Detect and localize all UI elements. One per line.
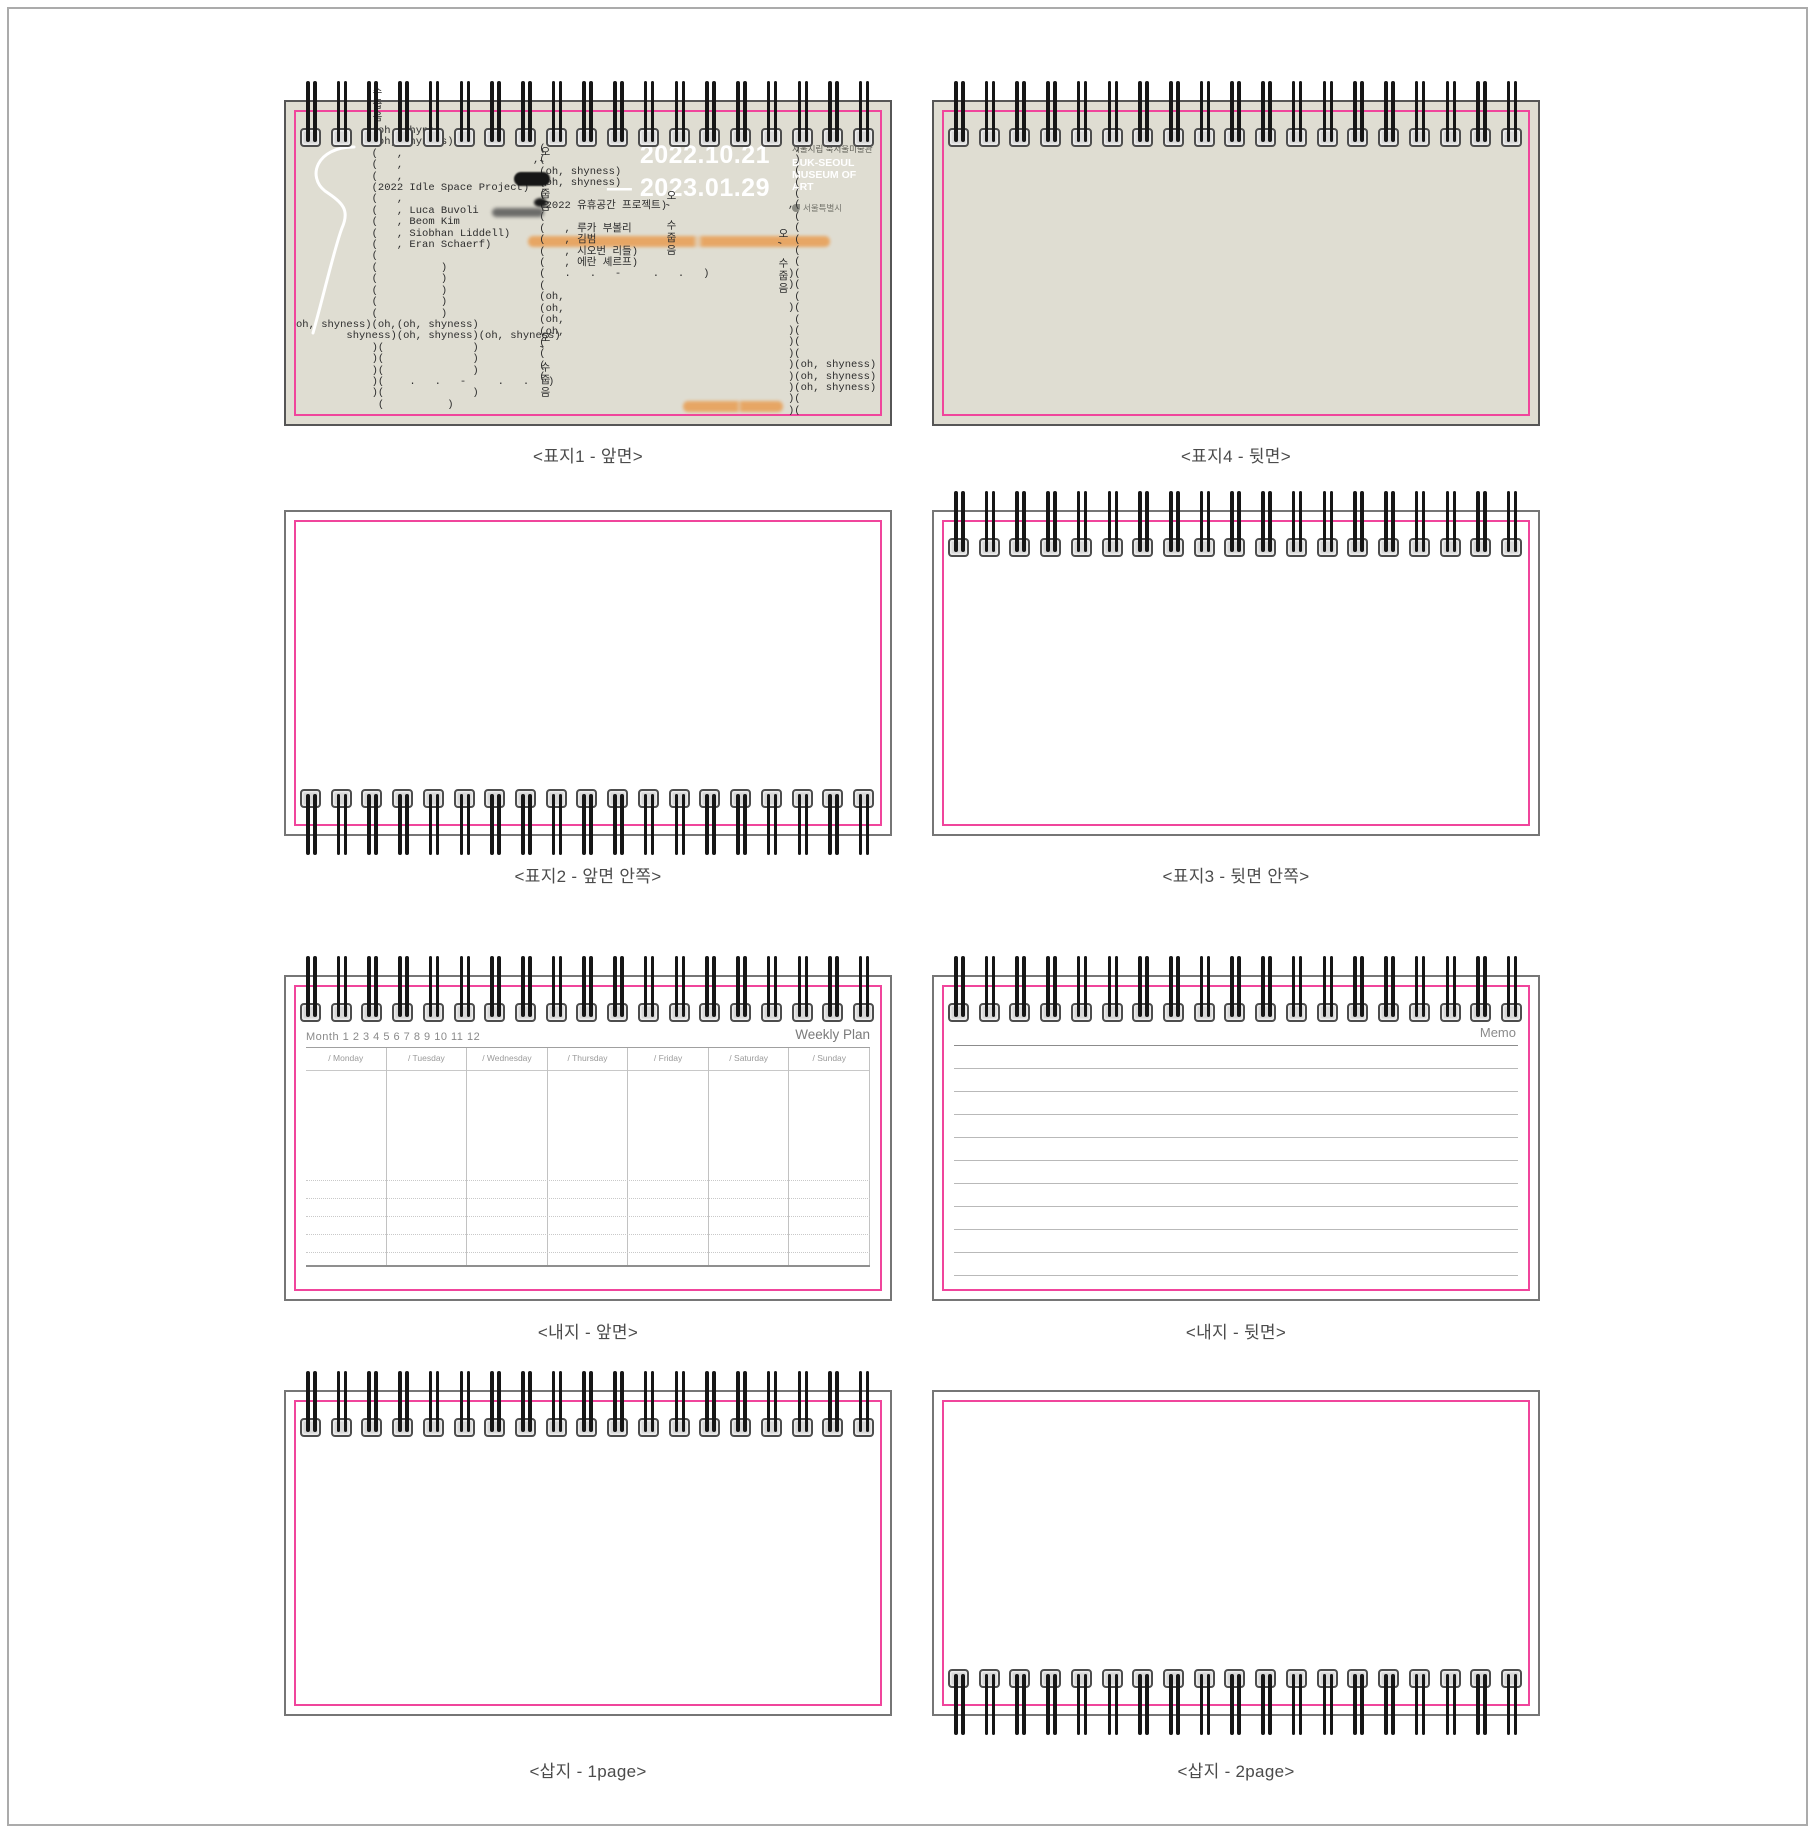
spiral-unit bbox=[761, 81, 784, 147]
spiral-wire bbox=[1169, 81, 1173, 142]
spiral-clamp bbox=[822, 789, 843, 808]
weekday-column: / Friday bbox=[628, 1048, 709, 1265]
spiral-wire bbox=[467, 794, 471, 855]
spiral-clamp bbox=[1071, 128, 1092, 147]
dotted-rule-line bbox=[306, 1234, 870, 1235]
spiral-clamp bbox=[1040, 128, 1061, 147]
spiral-unit bbox=[331, 789, 354, 855]
spiral-wire bbox=[559, 794, 563, 855]
spiral-clamp bbox=[607, 1003, 628, 1022]
spiral-wire bbox=[1022, 1674, 1026, 1735]
spiral-wire bbox=[429, 794, 433, 855]
spiral-wire bbox=[1268, 1674, 1272, 1735]
spiral-unit bbox=[1194, 956, 1217, 1022]
spiral-wire bbox=[1391, 956, 1395, 1017]
spiral-wire bbox=[1145, 1674, 1149, 1735]
spiral-clamp bbox=[1163, 1003, 1184, 1022]
spiral-clamp bbox=[1317, 1003, 1338, 1022]
panel-inner-back-memo: Memo <내지 - 뒷면> bbox=[932, 975, 1540, 1395]
spiral-unit bbox=[1163, 81, 1186, 147]
spiral-clamp bbox=[515, 1418, 536, 1437]
spiral-binding-top bbox=[948, 956, 1524, 1022]
spiral-wire bbox=[1507, 1674, 1511, 1735]
spiral-wire bbox=[743, 956, 747, 1017]
spiral-clamp bbox=[1194, 538, 1215, 557]
spiral-clamp bbox=[979, 1003, 1000, 1022]
redaction-black-pill bbox=[514, 172, 550, 186]
weekday-column: / Saturday bbox=[709, 1048, 790, 1265]
spiral-clamp bbox=[1347, 1669, 1368, 1688]
spiral-wire bbox=[1391, 1674, 1395, 1735]
spiral-wire bbox=[798, 794, 802, 855]
spiral-unit bbox=[1317, 81, 1340, 147]
spiral-wire bbox=[1299, 1674, 1303, 1735]
spiral-clamp bbox=[979, 1669, 1000, 1688]
spiral-unit bbox=[1009, 956, 1032, 1022]
spiral-wire bbox=[1453, 81, 1457, 142]
spiral-clamp bbox=[948, 538, 969, 557]
spiral-wire bbox=[774, 794, 778, 855]
spiral-unit bbox=[1102, 81, 1125, 147]
spiral-wire bbox=[1446, 956, 1450, 1017]
spiral-clamp bbox=[392, 1418, 413, 1437]
spiral-wire bbox=[1138, 956, 1142, 1017]
vertical-text: 오, 수줍음 bbox=[538, 332, 549, 399]
spiral-wire bbox=[1237, 1674, 1241, 1735]
spiral-clamp bbox=[1317, 1669, 1338, 1688]
spiral-wire bbox=[1483, 956, 1487, 1017]
spiral-clamp bbox=[1102, 1669, 1123, 1688]
spiral-wire bbox=[1053, 1674, 1057, 1735]
spiral-unit bbox=[1071, 956, 1094, 1022]
spiral-clamp bbox=[1255, 1669, 1276, 1688]
spiral-clamp bbox=[361, 789, 382, 808]
spiral-wire bbox=[1483, 81, 1487, 142]
spiral-clamp bbox=[484, 1418, 505, 1437]
spiral-wire bbox=[1446, 1674, 1450, 1735]
memo-rule-line bbox=[954, 1252, 1518, 1253]
spiral-wire bbox=[1046, 81, 1050, 142]
spiral-wire bbox=[736, 956, 740, 1017]
spiral-wire bbox=[805, 794, 809, 855]
spiral-clamp bbox=[515, 1003, 536, 1022]
spiral-unit bbox=[1224, 81, 1247, 147]
spiral-wire bbox=[1292, 81, 1296, 142]
spiral-wire bbox=[620, 81, 624, 142]
spiral-clamp bbox=[853, 1003, 874, 1022]
dotted-rule-line bbox=[306, 1252, 870, 1253]
spiral-clamp bbox=[1194, 1669, 1215, 1688]
spiral-wire bbox=[344, 956, 348, 1017]
spiral-clamp bbox=[576, 1418, 597, 1437]
spiral-unit bbox=[423, 956, 446, 1022]
spiral-wire bbox=[992, 956, 996, 1017]
spiral-clamp bbox=[454, 1418, 475, 1437]
spiral-unit bbox=[1470, 956, 1493, 1022]
spiral-wire bbox=[1230, 1674, 1234, 1735]
spiral-unit bbox=[515, 789, 538, 855]
pink-trim-border bbox=[294, 520, 882, 826]
spiral-wire bbox=[682, 794, 686, 855]
spiral-wire bbox=[1022, 81, 1026, 142]
spiral-wire bbox=[644, 956, 648, 1017]
spiral-wire bbox=[1108, 81, 1112, 142]
spiral-unit bbox=[1163, 956, 1186, 1022]
spiral-wire bbox=[651, 794, 655, 855]
spiral-wire bbox=[1084, 956, 1088, 1017]
spiral-wire bbox=[1514, 1674, 1518, 1735]
spiral-unit bbox=[300, 956, 323, 1022]
spiral-wire bbox=[1077, 956, 1081, 1017]
spiral-unit bbox=[638, 956, 661, 1022]
spiral-wire bbox=[1292, 956, 1296, 1017]
spiral-unit bbox=[361, 789, 384, 855]
spiral-clamp bbox=[1470, 128, 1491, 147]
panel-caption: <삽지 - 2page> bbox=[932, 1757, 1540, 1782]
spiral-wire bbox=[552, 956, 556, 1017]
spiral-wire bbox=[552, 794, 556, 855]
spiral-clamp bbox=[1378, 128, 1399, 147]
spiral-wire bbox=[490, 794, 494, 855]
spiral-wire bbox=[1483, 1674, 1487, 1735]
spiral-wire bbox=[828, 794, 832, 855]
spiral-wire bbox=[1108, 1674, 1112, 1735]
spiral-wire bbox=[675, 956, 679, 1017]
pink-trim-border bbox=[942, 520, 1530, 826]
spiral-unit bbox=[730, 789, 753, 855]
spiral-wire bbox=[582, 81, 586, 142]
spiral-wire bbox=[1169, 1674, 1173, 1735]
spiral-clamp bbox=[1470, 538, 1491, 557]
memo-title: Memo bbox=[1480, 1025, 1516, 1040]
spiral-unit bbox=[1317, 1669, 1340, 1735]
insert2-page bbox=[932, 1390, 1540, 1716]
spiral-wire bbox=[528, 794, 532, 855]
memo-rule-line bbox=[954, 1068, 1518, 1069]
spiral-wire bbox=[1476, 1674, 1480, 1735]
spiral-clamp bbox=[792, 789, 813, 808]
spiral-clamp bbox=[546, 789, 567, 808]
spiral-unit bbox=[1255, 1669, 1278, 1735]
spiral-unit bbox=[792, 789, 815, 855]
spiral-wire bbox=[644, 794, 648, 855]
spiral-wire bbox=[1507, 956, 1511, 1017]
spiral-wire bbox=[405, 794, 409, 855]
spiral-wire bbox=[644, 81, 648, 142]
spiral-clamp bbox=[948, 1003, 969, 1022]
spiral-clamp bbox=[1163, 128, 1184, 147]
cover2-page bbox=[284, 510, 892, 836]
spiral-clamp bbox=[1501, 1003, 1522, 1022]
spiral-wire bbox=[743, 794, 747, 855]
spiral-clamp bbox=[423, 789, 444, 808]
spiral-wire bbox=[1077, 1674, 1081, 1735]
spiral-wire bbox=[985, 81, 989, 142]
spiral-clamp bbox=[1347, 1003, 1368, 1022]
spiral-unit bbox=[699, 81, 722, 147]
spiral-clamp bbox=[822, 1418, 843, 1437]
spiral-clamp bbox=[1286, 1669, 1307, 1688]
spiral-unit bbox=[730, 81, 753, 147]
spiral-wire bbox=[992, 1674, 996, 1735]
calendar-proof-sheet: (oh, shynes (oh, shyness) ( , ( , ( , (2… bbox=[0, 0, 1815, 1833]
spiral-clamp bbox=[1255, 1003, 1276, 1022]
spiral-unit bbox=[607, 956, 630, 1022]
spiral-wire bbox=[767, 81, 771, 142]
spiral-wire bbox=[1200, 956, 1204, 1017]
spiral-clamp bbox=[979, 128, 1000, 147]
spiral-wire bbox=[1230, 81, 1234, 142]
panel-cover2-front-inside: <표지2 - 앞면 안쪽> bbox=[284, 510, 892, 930]
spiral-clamp bbox=[730, 1003, 751, 1022]
spiral-wire bbox=[1084, 81, 1088, 142]
spiral-clamp bbox=[699, 1003, 720, 1022]
spiral-wire bbox=[467, 956, 471, 1017]
spiral-unit bbox=[484, 956, 507, 1022]
spiral-wire bbox=[1145, 81, 1149, 142]
weekday-header: / Friday bbox=[628, 1048, 708, 1071]
spiral-unit bbox=[669, 956, 692, 1022]
spiral-unit bbox=[822, 789, 845, 855]
spiral-wire bbox=[559, 956, 563, 1017]
memo-rule-line bbox=[954, 1091, 1518, 1092]
spiral-wire bbox=[1053, 81, 1057, 142]
spiral-clamp bbox=[1009, 1669, 1030, 1688]
spiral-wire bbox=[1353, 81, 1357, 142]
spiral-clamp bbox=[1317, 128, 1338, 147]
spiral-clamp bbox=[1040, 1669, 1061, 1688]
spiral-wire bbox=[651, 81, 655, 142]
spiral-wire bbox=[374, 956, 378, 1017]
memo-rule-line bbox=[954, 1045, 1518, 1046]
spiral-unit bbox=[515, 956, 538, 1022]
spiral-unit bbox=[1102, 1669, 1125, 1735]
cover3-page bbox=[932, 510, 1540, 836]
vertical-text: 수줍음 bbox=[370, 86, 381, 124]
panel-insert-page2: <삽지 - 2page> bbox=[932, 1390, 1540, 1810]
spiral-wire bbox=[1237, 956, 1241, 1017]
spiral-clamp bbox=[1470, 1669, 1491, 1688]
spiral-clamp bbox=[1255, 128, 1276, 147]
weekday-column: / Tuesday bbox=[387, 1048, 468, 1265]
spiral-unit bbox=[454, 956, 477, 1022]
spiral-unit bbox=[1040, 956, 1063, 1022]
spiral-unit bbox=[1409, 1669, 1432, 1735]
spiral-unit bbox=[1409, 81, 1432, 147]
spiral-clamp bbox=[730, 789, 751, 808]
spiral-clamp bbox=[392, 1003, 413, 1022]
spiral-unit bbox=[1286, 81, 1309, 147]
spiral-unit bbox=[1224, 1669, 1247, 1735]
spiral-clamp bbox=[1440, 538, 1461, 557]
spiral-unit bbox=[638, 789, 661, 855]
spiral-clamp bbox=[1071, 1003, 1092, 1022]
panel-cover1-front: (oh, shynes (oh, shyness) ( , ( , ( , (2… bbox=[284, 100, 892, 520]
spiral-clamp bbox=[1470, 1003, 1491, 1022]
spiral-clamp bbox=[1224, 128, 1245, 147]
spiral-wire bbox=[1261, 956, 1265, 1017]
spiral-wire bbox=[620, 956, 624, 1017]
spiral-wire bbox=[961, 81, 965, 142]
memo-rule-line bbox=[954, 1206, 1518, 1207]
cover1-typewriter-left: (oh, shynes (oh, shyness) ( , ( , ( , (2… bbox=[296, 126, 561, 411]
spiral-clamp bbox=[638, 789, 659, 808]
spiral-wire bbox=[1422, 956, 1426, 1017]
spiral-clamp bbox=[300, 789, 321, 808]
spiral-wire bbox=[1514, 956, 1518, 1017]
spiral-wire bbox=[682, 956, 686, 1017]
spiral-wire bbox=[306, 794, 310, 855]
spiral-unit bbox=[1102, 956, 1125, 1022]
spiral-clamp bbox=[1409, 1003, 1430, 1022]
spiral-unit bbox=[1194, 1669, 1217, 1735]
spiral-wire bbox=[620, 794, 624, 855]
spiral-unit bbox=[607, 789, 630, 855]
spiral-wire bbox=[954, 1674, 958, 1735]
spiral-wire bbox=[1476, 81, 1480, 142]
spiral-unit bbox=[948, 81, 971, 147]
dotted-rule-line bbox=[306, 1216, 870, 1217]
weekday-column: / Wednesday bbox=[467, 1048, 548, 1265]
spiral-clamp bbox=[331, 789, 352, 808]
spiral-clamp bbox=[1071, 538, 1092, 557]
spiral-wire bbox=[1207, 956, 1211, 1017]
spiral-wire bbox=[405, 956, 409, 1017]
spiral-clamp bbox=[331, 1418, 352, 1437]
spiral-clamp bbox=[423, 1003, 444, 1022]
redaction-gray-pill bbox=[492, 208, 544, 217]
spiral-wire bbox=[1077, 81, 1081, 142]
spiral-clamp bbox=[1009, 1003, 1030, 1022]
spiral-clamp bbox=[607, 1418, 628, 1437]
spiral-wire bbox=[992, 81, 996, 142]
spiral-unit bbox=[853, 789, 876, 855]
panel-caption: <표지3 - 뒷면 안쪽> bbox=[932, 862, 1540, 887]
spiral-wire bbox=[1261, 1674, 1265, 1735]
spiral-unit bbox=[331, 956, 354, 1022]
spiral-clamp bbox=[1132, 1003, 1153, 1022]
spiral-clamp bbox=[1286, 128, 1307, 147]
spiral-wire bbox=[344, 794, 348, 855]
spiral-wire bbox=[1330, 1674, 1334, 1735]
spiral-unit bbox=[546, 956, 569, 1022]
spiral-wire bbox=[1237, 81, 1241, 142]
memo-rule-line bbox=[954, 1183, 1518, 1184]
spiral-wire bbox=[436, 956, 440, 1017]
spiral-clamp bbox=[392, 789, 413, 808]
spiral-unit bbox=[948, 956, 971, 1022]
spiral-unit bbox=[1440, 81, 1463, 147]
spiral-wire bbox=[1330, 81, 1334, 142]
spiral-unit bbox=[1501, 1669, 1524, 1735]
spiral-unit bbox=[1317, 956, 1340, 1022]
spiral-wire bbox=[398, 794, 402, 855]
spiral-wire bbox=[1292, 1674, 1296, 1735]
spiral-unit bbox=[484, 789, 507, 855]
spiral-wire bbox=[337, 956, 341, 1017]
spiral-clamp bbox=[1224, 1003, 1245, 1022]
spiral-unit bbox=[1255, 956, 1278, 1022]
spiral-wire bbox=[1084, 1674, 1088, 1735]
spiral-unit bbox=[607, 81, 630, 147]
spiral-wire bbox=[589, 794, 593, 855]
cover1-page: (oh, shynes (oh, shyness) ( , ( , ( , (2… bbox=[284, 100, 892, 426]
weekday-header: / Monday bbox=[306, 1048, 386, 1071]
memo-rule-line bbox=[954, 1229, 1518, 1230]
spiral-wire bbox=[1015, 81, 1019, 142]
spiral-unit bbox=[1132, 956, 1155, 1022]
spiral-unit bbox=[1470, 1669, 1493, 1735]
spiral-unit bbox=[1409, 956, 1432, 1022]
spiral-unit bbox=[1470, 81, 1493, 147]
panel-caption: <표지1 - 앞면> bbox=[284, 442, 892, 467]
spiral-wire bbox=[985, 1674, 989, 1735]
spiral-wire bbox=[1108, 956, 1112, 1017]
spiral-clamp bbox=[853, 1418, 874, 1437]
spiral-unit bbox=[699, 789, 722, 855]
panel-caption: <표지4 - 뒷면> bbox=[932, 442, 1540, 467]
spiral-clamp bbox=[1132, 128, 1153, 147]
spiral-unit bbox=[576, 789, 599, 855]
spiral-unit bbox=[1347, 956, 1370, 1022]
spiral-unit bbox=[1071, 1669, 1094, 1735]
spiral-wire bbox=[1115, 81, 1119, 142]
spiral-wire bbox=[589, 956, 593, 1017]
weekday-header: / Saturday bbox=[709, 1048, 789, 1071]
spiral-unit bbox=[392, 789, 415, 855]
month-numbers: 1 2 3 4 5 6 7 8 9 10 11 12 bbox=[343, 1031, 481, 1043]
panel-inner-front-weekly: Month 1 2 3 4 5 6 7 8 9 10 11 12 Weekly … bbox=[284, 975, 892, 1395]
spiral-unit bbox=[576, 81, 599, 147]
spiral-unit bbox=[1440, 956, 1463, 1022]
spiral-wire bbox=[398, 956, 402, 1017]
memo-rule-line bbox=[954, 1275, 1518, 1276]
spiral-wire bbox=[736, 794, 740, 855]
spiral-wire bbox=[1476, 956, 1480, 1017]
spiral-clamp bbox=[1440, 128, 1461, 147]
spiral-wire bbox=[736, 81, 740, 142]
spiral-clamp bbox=[300, 1003, 321, 1022]
spiral-binding-bottom bbox=[300, 789, 876, 855]
spiral-clamp bbox=[669, 789, 690, 808]
spiral-unit bbox=[1009, 81, 1032, 147]
spiral-wire bbox=[460, 956, 464, 1017]
spiral-unit bbox=[1501, 81, 1524, 147]
spiral-wire bbox=[613, 956, 617, 1017]
spiral-wire bbox=[1422, 81, 1426, 142]
spiral-wire bbox=[1415, 81, 1419, 142]
spiral-binding-top bbox=[948, 81, 1524, 147]
spiral-clamp bbox=[853, 789, 874, 808]
spiral-wire bbox=[961, 1674, 965, 1735]
spiral-clamp bbox=[1009, 538, 1030, 557]
memo-page: Memo bbox=[932, 975, 1540, 1301]
spiral-wire bbox=[460, 794, 464, 855]
panel-caption: <표지2 - 앞면 안쪽> bbox=[284, 862, 892, 887]
spiral-wire bbox=[1384, 1674, 1388, 1735]
spiral-wire bbox=[1138, 81, 1142, 142]
spiral-wire bbox=[1138, 1674, 1142, 1735]
spiral-wire bbox=[682, 81, 686, 142]
spiral-clamp bbox=[1102, 128, 1123, 147]
spiral-clamp bbox=[1317, 538, 1338, 557]
spiral-clamp bbox=[1378, 538, 1399, 557]
spiral-wire bbox=[582, 794, 586, 855]
spiral-wire bbox=[582, 956, 586, 1017]
vertical-text: 오, 수줍음 bbox=[776, 228, 787, 295]
spiral-clamp bbox=[1409, 128, 1430, 147]
pink-trim-border bbox=[942, 985, 1530, 1291]
